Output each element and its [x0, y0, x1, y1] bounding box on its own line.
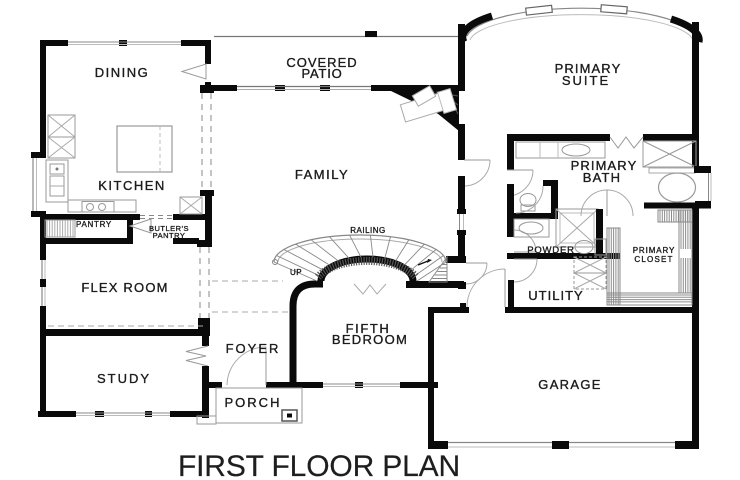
svg-text:FOYER: FOYER: [226, 341, 281, 356]
svg-text:DINING: DINING: [95, 65, 150, 80]
svg-text:STUDY: STUDY: [97, 371, 151, 386]
svg-text:PATIO: PATIO: [301, 66, 342, 81]
svg-text:KITCHEN: KITCHEN: [98, 178, 166, 193]
svg-text:PANTRY: PANTRY: [153, 231, 186, 240]
svg-text:FLEX ROOM: FLEX ROOM: [81, 280, 168, 295]
svg-text:FAMILY: FAMILY: [295, 167, 349, 182]
svg-text:PORCH: PORCH: [225, 395, 282, 410]
svg-text:RAILING: RAILING: [350, 226, 386, 235]
svg-text:BEDROOM: BEDROOM: [332, 332, 408, 347]
svg-text:BATH: BATH: [583, 170, 622, 185]
svg-text:FIRST FLOOR PLAN: FIRST FLOOR PLAN: [178, 450, 460, 480]
svg-text:UTILITY: UTILITY: [528, 288, 583, 303]
svg-text:GARAGE: GARAGE: [538, 377, 601, 392]
svg-text:SUITE: SUITE: [562, 73, 610, 88]
svg-text:PANTRY: PANTRY: [76, 220, 112, 229]
svg-text:POWDER: POWDER: [527, 245, 575, 256]
svg-text:UP: UP: [290, 268, 302, 277]
svg-text:PRIMARY: PRIMARY: [633, 246, 676, 255]
svg-text:CLOSET: CLOSET: [634, 255, 673, 264]
